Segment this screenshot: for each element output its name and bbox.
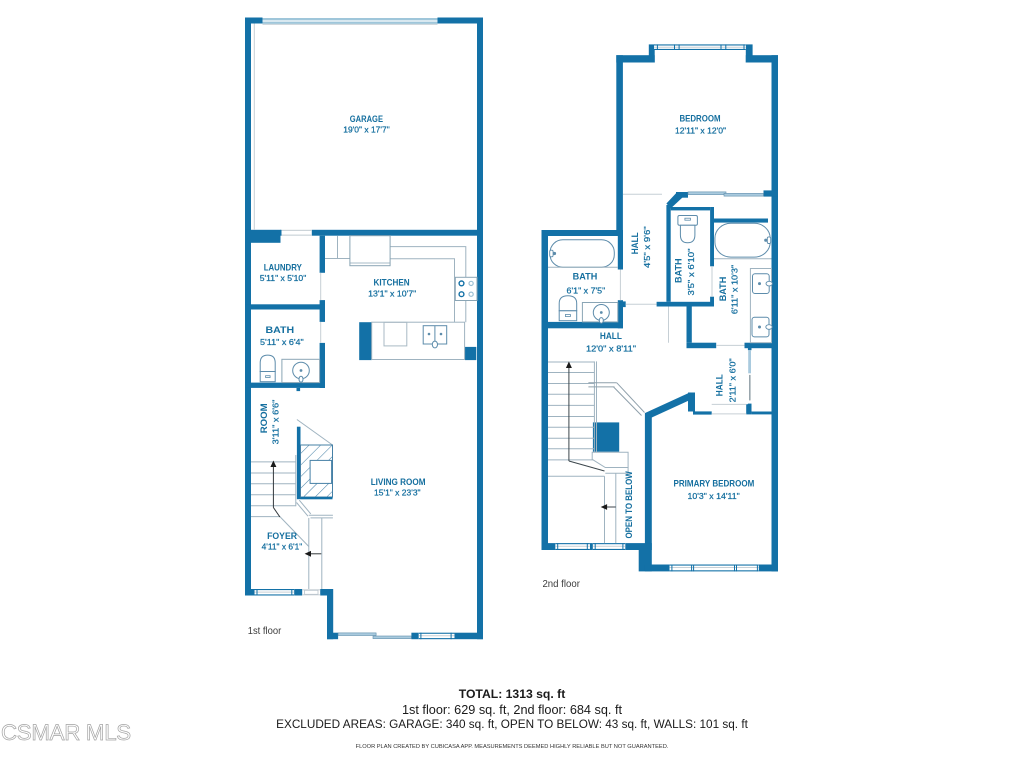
- svg-text:GARAGE: GARAGE: [350, 114, 383, 124]
- svg-text:LIVING ROOM: LIVING ROOM: [371, 477, 426, 487]
- svg-text:BEDROOM: BEDROOM: [679, 113, 720, 123]
- svg-text:12'0" x 8'11": 12'0" x 8'11": [586, 344, 636, 354]
- svg-text:KITCHEN: KITCHEN: [374, 278, 410, 288]
- svg-text:12'11" x 12'0": 12'11" x 12'0": [675, 126, 726, 136]
- svg-text:FOYER: FOYER: [267, 531, 298, 541]
- svg-text:HALL: HALL: [600, 331, 623, 341]
- svg-text:5'11" x 5'10": 5'11" x 5'10": [260, 273, 307, 283]
- svg-text:2'11" x 6'0": 2'11" x 6'0": [727, 358, 737, 402]
- svg-text:3'5" x 6'10": 3'5" x 6'10": [686, 249, 696, 296]
- svg-text:5'11" x 6'4": 5'11" x 6'4": [260, 337, 304, 347]
- svg-text:13'1" x 10'7": 13'1" x 10'7": [368, 288, 416, 298]
- svg-text:BATH: BATH: [674, 258, 684, 283]
- svg-text:4'11" x 6'1": 4'11" x 6'1": [262, 541, 303, 551]
- svg-text:2nd floor: 2nd floor: [542, 579, 580, 590]
- svg-text:OPEN TO BELOW: OPEN TO BELOW: [624, 471, 634, 539]
- svg-text:4'5" x 9'6": 4'5" x 9'6": [642, 226, 652, 268]
- svg-text:6'11" x 10'3": 6'11" x 10'3": [730, 265, 740, 314]
- svg-text:1st floor: 1st floor: [248, 626, 282, 637]
- svg-text:PRIMARY BEDROOM: PRIMARY BEDROOM: [674, 478, 755, 488]
- svg-text:HALL: HALL: [630, 232, 640, 255]
- svg-text:LAUNDRY: LAUNDRY: [264, 262, 302, 272]
- svg-text:15'1" x 23'3": 15'1" x 23'3": [374, 487, 421, 497]
- svg-text:BATH: BATH: [718, 277, 728, 302]
- svg-text:19'0" x 17'7": 19'0" x 17'7": [343, 125, 390, 135]
- svg-text:HALL: HALL: [715, 374, 725, 397]
- svg-text:3'11" x 6'6": 3'11" x 6'6": [271, 400, 281, 445]
- svg-text:ROOM: ROOM: [259, 403, 269, 433]
- svg-text:10'3" x 14'11": 10'3" x 14'11": [688, 491, 740, 501]
- svg-text:6'1" x 7'5": 6'1" x 7'5": [567, 285, 606, 295]
- svg-text:BATH: BATH: [573, 272, 598, 282]
- svg-text:BATH: BATH: [266, 325, 295, 335]
